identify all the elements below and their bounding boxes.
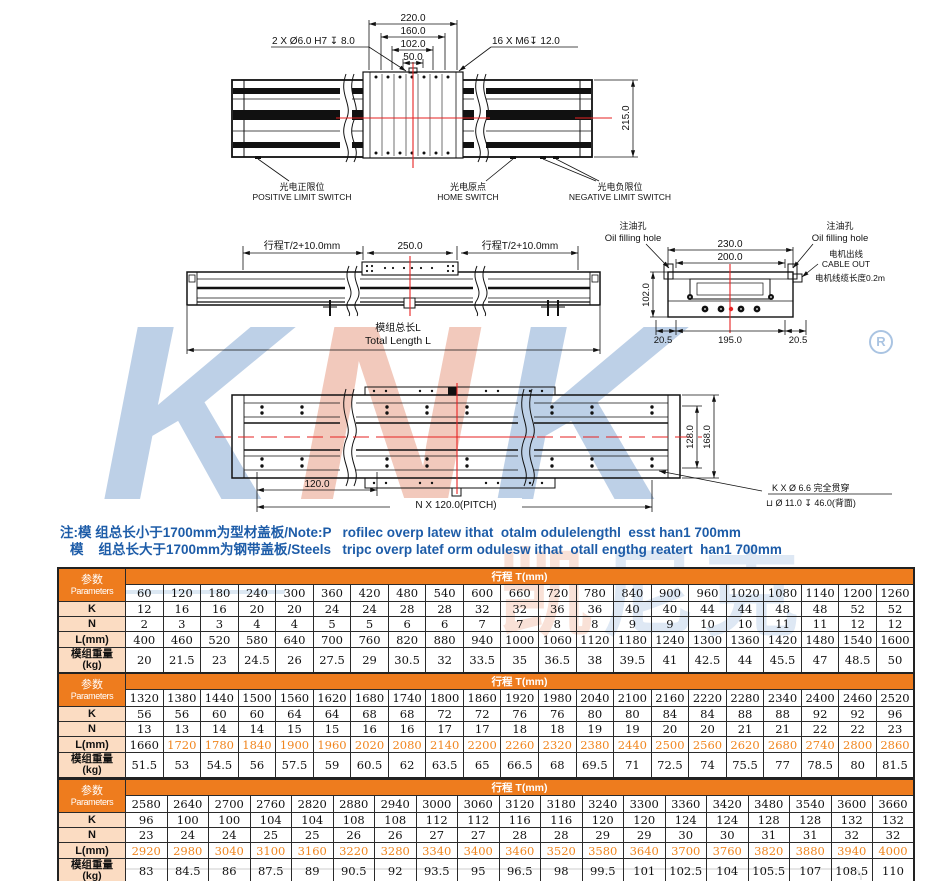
value-cell: 32 xyxy=(831,828,873,843)
value-cell: 20 xyxy=(276,602,314,617)
bottom-view-drawing: 128.0 168.0 120.0 N X 120.0(PITCH) K X Ø… xyxy=(215,383,892,512)
dim-230-label: 230.0 xyxy=(717,239,742,250)
value-cell: 30 xyxy=(707,828,749,843)
value-cell: 9 xyxy=(614,617,652,632)
value-cell: 6 xyxy=(388,617,426,632)
stroke-value-cell: 1200 xyxy=(839,585,877,602)
value-cell: 36 xyxy=(539,602,577,617)
value-cell: 69.5 xyxy=(576,753,614,779)
stroke-value-cell: 660 xyxy=(501,585,539,602)
value-cell: 10 xyxy=(726,617,764,632)
stroke-value-cell: 300 xyxy=(276,585,314,602)
value-cell: 75.5 xyxy=(726,753,764,779)
value-cell: 71 xyxy=(614,753,652,779)
value-cell: 81.5 xyxy=(876,753,914,779)
value-cell: 78.5 xyxy=(801,753,839,779)
row-label-cell: N xyxy=(58,828,126,843)
value-cell: 63.5 xyxy=(426,753,464,779)
stroke-left-label: 行程T/2+10.0mm xyxy=(264,239,340,252)
value-cell: 2080 xyxy=(388,737,426,753)
value-cell: 3760 xyxy=(707,843,749,859)
value-cell: 1180 xyxy=(614,632,652,648)
value-cell: 64 xyxy=(313,707,351,722)
value-cell: 18 xyxy=(501,722,539,737)
value-cell: 98 xyxy=(541,859,583,881)
stroke-value-cell: 1920 xyxy=(501,690,539,707)
value-cell: 52 xyxy=(876,602,914,617)
value-cell: 44 xyxy=(726,648,764,674)
value-cell: 18 xyxy=(539,722,577,737)
value-cell: 13 xyxy=(126,722,164,737)
value-cell: 44 xyxy=(689,602,727,617)
value-cell: 26 xyxy=(276,648,314,674)
value-cell: 24.5 xyxy=(238,648,276,674)
value-cell: 68 xyxy=(351,707,389,722)
value-cell: 2860 xyxy=(876,737,914,753)
value-cell: 3340 xyxy=(416,843,458,859)
value-cell: 120 xyxy=(582,813,624,828)
stroke-value-cell: 3540 xyxy=(790,796,832,813)
row-label-cell: L(mm) xyxy=(58,632,126,648)
value-cell: 48 xyxy=(801,602,839,617)
row-label-cell: L(mm) xyxy=(58,737,126,753)
value-cell: 93.5 xyxy=(416,859,458,881)
stroke-value-cell: 2340 xyxy=(764,690,802,707)
negative-limit-label-en: NEGATIVE LIMIT SWITCH xyxy=(569,192,671,202)
stroke-right-label: 行程T/2+10.0mm xyxy=(482,239,558,252)
home-switch-label-cn: 光电原点 xyxy=(450,181,486,192)
cross-section-drawing: 注油孔 Oil filling hole 注油孔 Oil filling hol… xyxy=(605,220,885,346)
value-cell: 23 xyxy=(201,648,239,674)
value-cell: 1120 xyxy=(576,632,614,648)
value-cell: 1540 xyxy=(839,632,877,648)
value-cell: 68 xyxy=(539,753,577,779)
value-cell: 25 xyxy=(250,828,292,843)
value-cell: 1660 xyxy=(126,737,164,753)
value-cell: 77 xyxy=(764,753,802,779)
value-cell: 89 xyxy=(292,859,334,881)
value-cell: 3940 xyxy=(831,843,873,859)
stroke-value-cell: 2520 xyxy=(876,690,914,707)
value-cell: 1960 xyxy=(313,737,351,753)
value-cell: 28 xyxy=(388,602,426,617)
side-view-drawing: 行程T/2+10.0mm 250.0 行程T/2+10.0mm 模组总长L To… xyxy=(187,239,600,354)
value-cell: 128 xyxy=(790,813,832,828)
value-cell: 96.5 xyxy=(499,859,541,881)
value-cell: 2620 xyxy=(726,737,764,753)
param-header-cell: 参数Parameters xyxy=(58,568,126,602)
note-line-2: 模 组总长大于1700mm为钢带盖板/Steels tripc overp la… xyxy=(60,541,782,558)
stroke-value-cell: 3240 xyxy=(582,796,624,813)
value-cell: 16 xyxy=(163,602,201,617)
value-cell: 76 xyxy=(501,707,539,722)
value-cell: 30 xyxy=(665,828,707,843)
value-cell: 45.5 xyxy=(764,648,802,674)
value-cell: 2140 xyxy=(426,737,464,753)
row-label-cell: L(mm) xyxy=(58,843,126,859)
stroke-value-cell: 2880 xyxy=(333,796,375,813)
dim-160-label: 160.0 xyxy=(400,26,425,37)
value-cell: 1780 xyxy=(201,737,239,753)
value-cell: 2200 xyxy=(463,737,501,753)
value-cell: 38 xyxy=(576,648,614,674)
value-cell: 17 xyxy=(426,722,464,737)
stroke-value-cell: 60 xyxy=(126,585,164,602)
value-cell: 68 xyxy=(388,707,426,722)
value-cell: 3160 xyxy=(292,843,334,859)
value-cell: 3880 xyxy=(790,843,832,859)
value-cell: 2320 xyxy=(539,737,577,753)
oil-hole-left-label-en: Oil filling hole xyxy=(605,233,662,244)
value-cell: 26 xyxy=(333,828,375,843)
stroke-value-cell: 1860 xyxy=(463,690,501,707)
value-cell: 1900 xyxy=(276,737,314,753)
value-cell: 108.5 xyxy=(831,859,873,881)
value-cell: 47 xyxy=(801,648,839,674)
cable-out-label-en: CABLE OUT xyxy=(822,259,870,269)
value-cell: 8 xyxy=(576,617,614,632)
value-cell: 27.5 xyxy=(313,648,351,674)
value-cell: 1840 xyxy=(238,737,276,753)
value-cell: 128 xyxy=(748,813,790,828)
dim-195-label: 195.0 xyxy=(718,335,742,346)
stroke-value-cell: 2100 xyxy=(614,690,652,707)
top-view-drawing: 220.0 160.0 102.0 50.0 215.0 2 X Ø6.0 H7… xyxy=(232,13,671,202)
value-cell: 4 xyxy=(238,617,276,632)
value-cell: 53 xyxy=(163,753,201,779)
value-cell: 32 xyxy=(873,828,915,843)
value-cell: 72 xyxy=(426,707,464,722)
row-label-cell: K xyxy=(58,602,126,617)
stroke-value-cell: 2040 xyxy=(576,690,614,707)
value-cell: 11 xyxy=(801,617,839,632)
value-cell: 40 xyxy=(614,602,652,617)
value-cell: 112 xyxy=(416,813,458,828)
value-cell: 80 xyxy=(614,707,652,722)
stroke-value-cell: 2400 xyxy=(801,690,839,707)
dim-250-label: 250.0 xyxy=(397,241,422,252)
value-cell: 65 xyxy=(463,753,501,779)
stroke-value-cell: 180 xyxy=(201,585,239,602)
hole-note-line2: ⊔ Ø 11.0 ↧ 46.0(背面) xyxy=(766,497,856,508)
value-cell: 29 xyxy=(351,648,389,674)
dowel-hole-note: 2 X Ø6.0 H7 ↧ 8.0 xyxy=(272,36,355,47)
value-cell: 116 xyxy=(499,813,541,828)
stroke-value-cell: 3360 xyxy=(665,796,707,813)
cable-length-label: 电机线缆长度0.2m xyxy=(815,273,885,283)
dim-205-right-label: 20.5 xyxy=(789,335,808,346)
stroke-value-cell: 1980 xyxy=(539,690,577,707)
row-label-cell: N xyxy=(58,617,126,632)
dim-205-left-label: 20.5 xyxy=(654,335,673,346)
value-cell: 16 xyxy=(351,722,389,737)
value-cell: 83 xyxy=(126,859,168,881)
value-cell: 35 xyxy=(501,648,539,674)
stroke-value-cell: 2700 xyxy=(209,796,251,813)
value-cell: 19 xyxy=(614,722,652,737)
value-cell: 7 xyxy=(501,617,539,632)
value-cell: 72 xyxy=(463,707,501,722)
value-cell: 520 xyxy=(201,632,239,648)
value-cell: 40 xyxy=(651,602,689,617)
value-cell: 48 xyxy=(764,602,802,617)
value-cell: 23 xyxy=(126,828,168,843)
stroke-value-cell: 1740 xyxy=(388,690,426,707)
stroke-value-cell: 2160 xyxy=(651,690,689,707)
value-cell: 1420 xyxy=(764,632,802,648)
row-label-cell: 模组重量(kg) xyxy=(58,648,126,674)
value-cell: 400 xyxy=(126,632,164,648)
stroke-value-cell: 2940 xyxy=(375,796,417,813)
value-cell: 1300 xyxy=(689,632,727,648)
value-cell: 24 xyxy=(209,828,251,843)
value-cell: 16 xyxy=(388,722,426,737)
hole-annotation: K X Ø 6.6 完全贯穿 ⊔ Ø 11.0 ↧ 46.0(背面) xyxy=(659,471,892,508)
stroke-header-cell: 行程 T(mm) xyxy=(126,568,915,585)
value-cell: 31 xyxy=(748,828,790,843)
value-cell: 105.5 xyxy=(748,859,790,881)
stroke-value-cell: 3120 xyxy=(499,796,541,813)
value-cell: 42.5 xyxy=(689,648,727,674)
value-cell: 2980 xyxy=(167,843,209,859)
param-header-cell: 参数Parameters xyxy=(58,673,126,707)
value-cell: 3 xyxy=(201,617,239,632)
stroke-value-cell: 3480 xyxy=(748,796,790,813)
stroke-value-cell: 120 xyxy=(163,585,201,602)
value-cell: 5 xyxy=(313,617,351,632)
value-cell: 3700 xyxy=(665,843,707,859)
value-cell: 2500 xyxy=(651,737,689,753)
value-cell: 16 xyxy=(201,602,239,617)
value-cell: 110 xyxy=(873,859,915,881)
total-length-label-en: Total Length L xyxy=(365,335,431,347)
value-cell: 95 xyxy=(458,859,500,881)
stroke-value-cell: 1020 xyxy=(726,585,764,602)
value-cell: 31 xyxy=(790,828,832,843)
value-cell: 3 xyxy=(163,617,201,632)
value-cell: 92 xyxy=(839,707,877,722)
value-cell: 96 xyxy=(876,707,914,722)
stroke-value-cell: 1260 xyxy=(876,585,914,602)
value-cell: 66.5 xyxy=(501,753,539,779)
stroke-value-cell: 1620 xyxy=(313,690,351,707)
value-cell: 62 xyxy=(388,753,426,779)
value-cell: 41 xyxy=(651,648,689,674)
dim-102-label: 102.0 xyxy=(400,39,425,50)
value-cell: 92 xyxy=(375,859,417,881)
value-cell: 3100 xyxy=(250,843,292,859)
stroke-value-cell: 360 xyxy=(313,585,351,602)
value-cell: 74 xyxy=(689,753,727,779)
row-label-cell: 模组重量(kg) xyxy=(58,859,126,881)
value-cell: 108 xyxy=(333,813,375,828)
stroke-value-cell: 2460 xyxy=(839,690,877,707)
value-cell: 102.5 xyxy=(665,859,707,881)
oil-hole-right-label-cn: 注油孔 xyxy=(826,220,853,231)
value-cell: 20 xyxy=(651,722,689,737)
value-cell: 1720 xyxy=(163,737,201,753)
value-cell: 12 xyxy=(839,617,877,632)
value-cell: 2260 xyxy=(501,737,539,753)
value-cell: 2560 xyxy=(689,737,727,753)
value-cell: 99.5 xyxy=(582,859,624,881)
value-cell: 101 xyxy=(624,859,666,881)
stroke-value-cell: 1680 xyxy=(351,690,389,707)
stroke-value-cell: 2580 xyxy=(126,796,168,813)
negative-limit-label-cn: 光电负限位 xyxy=(597,181,642,192)
stroke-value-cell: 840 xyxy=(614,585,652,602)
value-cell: 76 xyxy=(539,707,577,722)
value-cell: 1000 xyxy=(501,632,539,648)
value-cell: 23 xyxy=(876,722,914,737)
value-cell: 24 xyxy=(351,602,389,617)
section-body xyxy=(664,264,802,333)
row-label-cell: K xyxy=(58,707,126,722)
stroke-value-cell: 2820 xyxy=(292,796,334,813)
stroke-header-cell: 行程 T(mm) xyxy=(126,673,915,690)
side-rail-lines xyxy=(197,279,590,302)
hole-note-line1: K X Ø 6.6 完全贯穿 xyxy=(772,482,850,493)
value-cell: 57.5 xyxy=(276,753,314,779)
value-cell: 9 xyxy=(651,617,689,632)
stroke-value-cell: 720 xyxy=(539,585,577,602)
stroke-header-cell: 行程 T(mm) xyxy=(126,779,915,796)
value-cell: 2740 xyxy=(801,737,839,753)
value-cell: 3220 xyxy=(333,843,375,859)
value-cell: 3460 xyxy=(499,843,541,859)
value-cell: 60.5 xyxy=(351,753,389,779)
stroke-value-cell: 1320 xyxy=(126,690,164,707)
value-cell: 24 xyxy=(313,602,351,617)
stroke-value-cell: 240 xyxy=(238,585,276,602)
spec-table-stroke-60-1260: 参数Parameters行程 T(mm)60120180240300360420… xyxy=(57,567,915,674)
value-cell: 27 xyxy=(416,828,458,843)
stroke-value-cell: 1080 xyxy=(764,585,802,602)
value-cell: 32 xyxy=(501,602,539,617)
value-cell: 96 xyxy=(126,813,168,828)
switch-labels: 光电正限位 POSITIVE LIMIT SWITCH 光电原点 HOME SW… xyxy=(252,156,671,202)
value-cell: 29 xyxy=(582,828,624,843)
value-cell: 19 xyxy=(576,722,614,737)
dim-220-label: 220.0 xyxy=(400,13,425,24)
value-cell: 3580 xyxy=(582,843,624,859)
value-cell: 80 xyxy=(576,707,614,722)
stroke-value-cell: 2220 xyxy=(689,690,727,707)
carriage-side-view xyxy=(362,256,458,316)
value-cell: 44 xyxy=(726,602,764,617)
value-cell: 2440 xyxy=(614,737,652,753)
value-cell: 84.5 xyxy=(167,859,209,881)
value-cell: 36.5 xyxy=(539,648,577,674)
value-cell: 1600 xyxy=(876,632,914,648)
value-cell: 17 xyxy=(463,722,501,737)
stroke-value-cell: 1380 xyxy=(163,690,201,707)
value-cell: 104 xyxy=(292,813,334,828)
value-cell: 88 xyxy=(764,707,802,722)
dim-128-label: 128.0 xyxy=(685,425,696,449)
stroke-value-cell: 3600 xyxy=(831,796,873,813)
param-header-cell: 参数Parameters xyxy=(58,779,126,813)
value-cell: 30.5 xyxy=(388,648,426,674)
value-cell: 1480 xyxy=(801,632,839,648)
value-cell: 4 xyxy=(276,617,314,632)
value-cell: 2 xyxy=(126,617,164,632)
value-cell: 80 xyxy=(839,753,877,779)
value-cell: 124 xyxy=(665,813,707,828)
stroke-value-cell: 2280 xyxy=(726,690,764,707)
value-cell: 86 xyxy=(209,859,251,881)
positive-limit-label-en: POSITIVE LIMIT SWITCH xyxy=(252,192,351,202)
value-cell: 36 xyxy=(576,602,614,617)
value-cell: 26 xyxy=(375,828,417,843)
value-cell: 39.5 xyxy=(614,648,652,674)
value-cell: 13 xyxy=(163,722,201,737)
dim-102-section-label: 102.0 xyxy=(641,283,652,307)
value-cell: 3280 xyxy=(375,843,417,859)
value-cell: 100 xyxy=(167,813,209,828)
value-cell: 5 xyxy=(351,617,389,632)
value-cell: 3820 xyxy=(748,843,790,859)
value-cell: 1060 xyxy=(539,632,577,648)
total-length-label-cn: 模组总长L xyxy=(375,321,421,334)
value-cell: 25 xyxy=(292,828,334,843)
value-cell: 72.5 xyxy=(651,753,689,779)
row-label-cell: N xyxy=(58,722,126,737)
oil-hole-left-label-cn: 注油孔 xyxy=(619,220,646,231)
value-cell: 2800 xyxy=(839,737,877,753)
value-cell: 20 xyxy=(689,722,727,737)
value-cell: 120 xyxy=(624,813,666,828)
value-cell: 32 xyxy=(463,602,501,617)
dim-120-label: 120.0 xyxy=(304,479,329,490)
value-cell: 52 xyxy=(839,602,877,617)
stroke-value-cell: 3000 xyxy=(416,796,458,813)
stroke-value-cell: 900 xyxy=(651,585,689,602)
value-cell: 56 xyxy=(238,753,276,779)
technical-drawings: 220.0 160.0 102.0 50.0 215.0 2 X Ø6.0 H7… xyxy=(0,0,950,562)
value-cell: 15 xyxy=(276,722,314,737)
value-cell: 22 xyxy=(801,722,839,737)
value-cell: 56 xyxy=(163,707,201,722)
side-view-dimensions: 行程T/2+10.0mm 250.0 行程T/2+10.0mm 模组总长L To… xyxy=(187,239,600,354)
value-cell: 124 xyxy=(707,813,749,828)
value-cell: 21 xyxy=(764,722,802,737)
value-cell: 820 xyxy=(388,632,426,648)
value-cell: 104 xyxy=(250,813,292,828)
value-cell: 2380 xyxy=(576,737,614,753)
value-cell: 90.5 xyxy=(333,859,375,881)
stroke-value-cell: 420 xyxy=(351,585,389,602)
value-cell: 6 xyxy=(426,617,464,632)
stroke-value-cell: 3180 xyxy=(541,796,583,813)
value-cell: 60 xyxy=(201,707,239,722)
row-label-cell: 模组重量(kg) xyxy=(58,753,126,779)
value-cell: 12 xyxy=(126,602,164,617)
value-cell: 15 xyxy=(313,722,351,737)
value-cell: 20 xyxy=(126,648,164,674)
stroke-value-cell: 3060 xyxy=(458,796,500,813)
value-cell: 132 xyxy=(831,813,873,828)
value-cell: 56 xyxy=(126,707,164,722)
value-cell: 28 xyxy=(499,828,541,843)
value-cell: 12 xyxy=(876,617,914,632)
cable-out-label-cn: 电机出线 xyxy=(829,249,864,259)
spec-table-stroke-1320-2520: 参数Parameters行程 T(mm)13201380144015001560… xyxy=(57,672,915,779)
stroke-value-cell: 1560 xyxy=(276,690,314,707)
value-cell: 87.5 xyxy=(250,859,292,881)
value-cell: 8 xyxy=(539,617,577,632)
value-cell: 3040 xyxy=(209,843,251,859)
